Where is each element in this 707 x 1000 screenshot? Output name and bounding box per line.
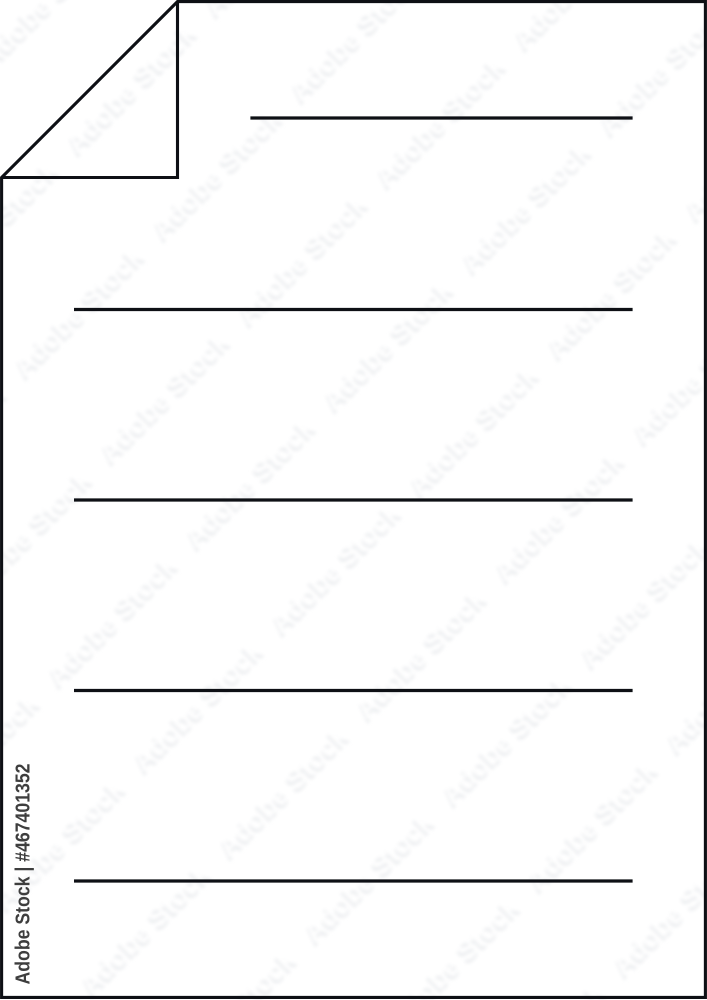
svg-text:Adobe Stock | #467401352: Adobe Stock | #467401352 bbox=[12, 764, 35, 985]
